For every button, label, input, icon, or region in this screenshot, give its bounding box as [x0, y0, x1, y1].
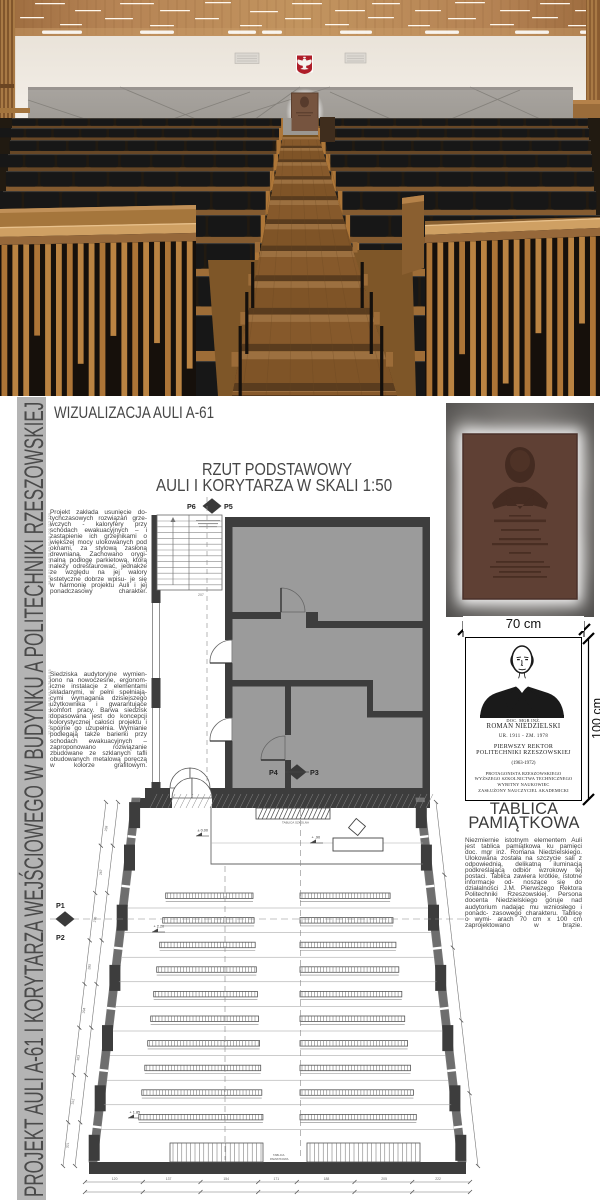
svg-text:207: 207	[198, 593, 204, 597]
svg-text:321: 321	[65, 1142, 70, 1148]
svg-text:+ 1.85: + 1.85	[130, 1111, 141, 1115]
svg-text:294: 294	[82, 1007, 87, 1013]
svg-text:188: 188	[324, 1177, 330, 1181]
svg-text:+ .90: + .90	[312, 836, 321, 840]
svg-text:276: 276	[93, 916, 98, 922]
svg-text:± 0.00: ± 0.00	[198, 829, 209, 833]
svg-text:303: 303	[76, 1055, 81, 1061]
svg-text:TABLICA SZKOLNA: TABLICA SZKOLNA	[282, 821, 309, 825]
svg-text:P4: P4	[269, 768, 278, 777]
svg-text:+ 2.20: + 2.20	[154, 925, 165, 929]
svg-text:222: 222	[435, 1177, 441, 1181]
svg-text:285: 285	[87, 964, 92, 970]
svg-text:258: 258	[104, 825, 109, 831]
svg-text:205: 205	[381, 1177, 387, 1181]
svg-text:312: 312	[71, 1098, 76, 1104]
svg-text:P1: P1	[56, 901, 65, 910]
svg-text:P2: P2	[56, 933, 65, 942]
svg-text:PAMIATKOWA: PAMIATKOWA	[270, 1157, 289, 1161]
svg-text:267: 267	[99, 869, 104, 875]
svg-text:154: 154	[223, 1177, 229, 1181]
svg-text:P5: P5	[224, 502, 233, 511]
svg-text:P3: P3	[310, 768, 319, 777]
svg-text:137: 137	[166, 1177, 172, 1181]
svg-text:171: 171	[274, 1177, 280, 1181]
svg-text:120: 120	[112, 1177, 118, 1181]
svg-text:P6: P6	[187, 502, 196, 511]
